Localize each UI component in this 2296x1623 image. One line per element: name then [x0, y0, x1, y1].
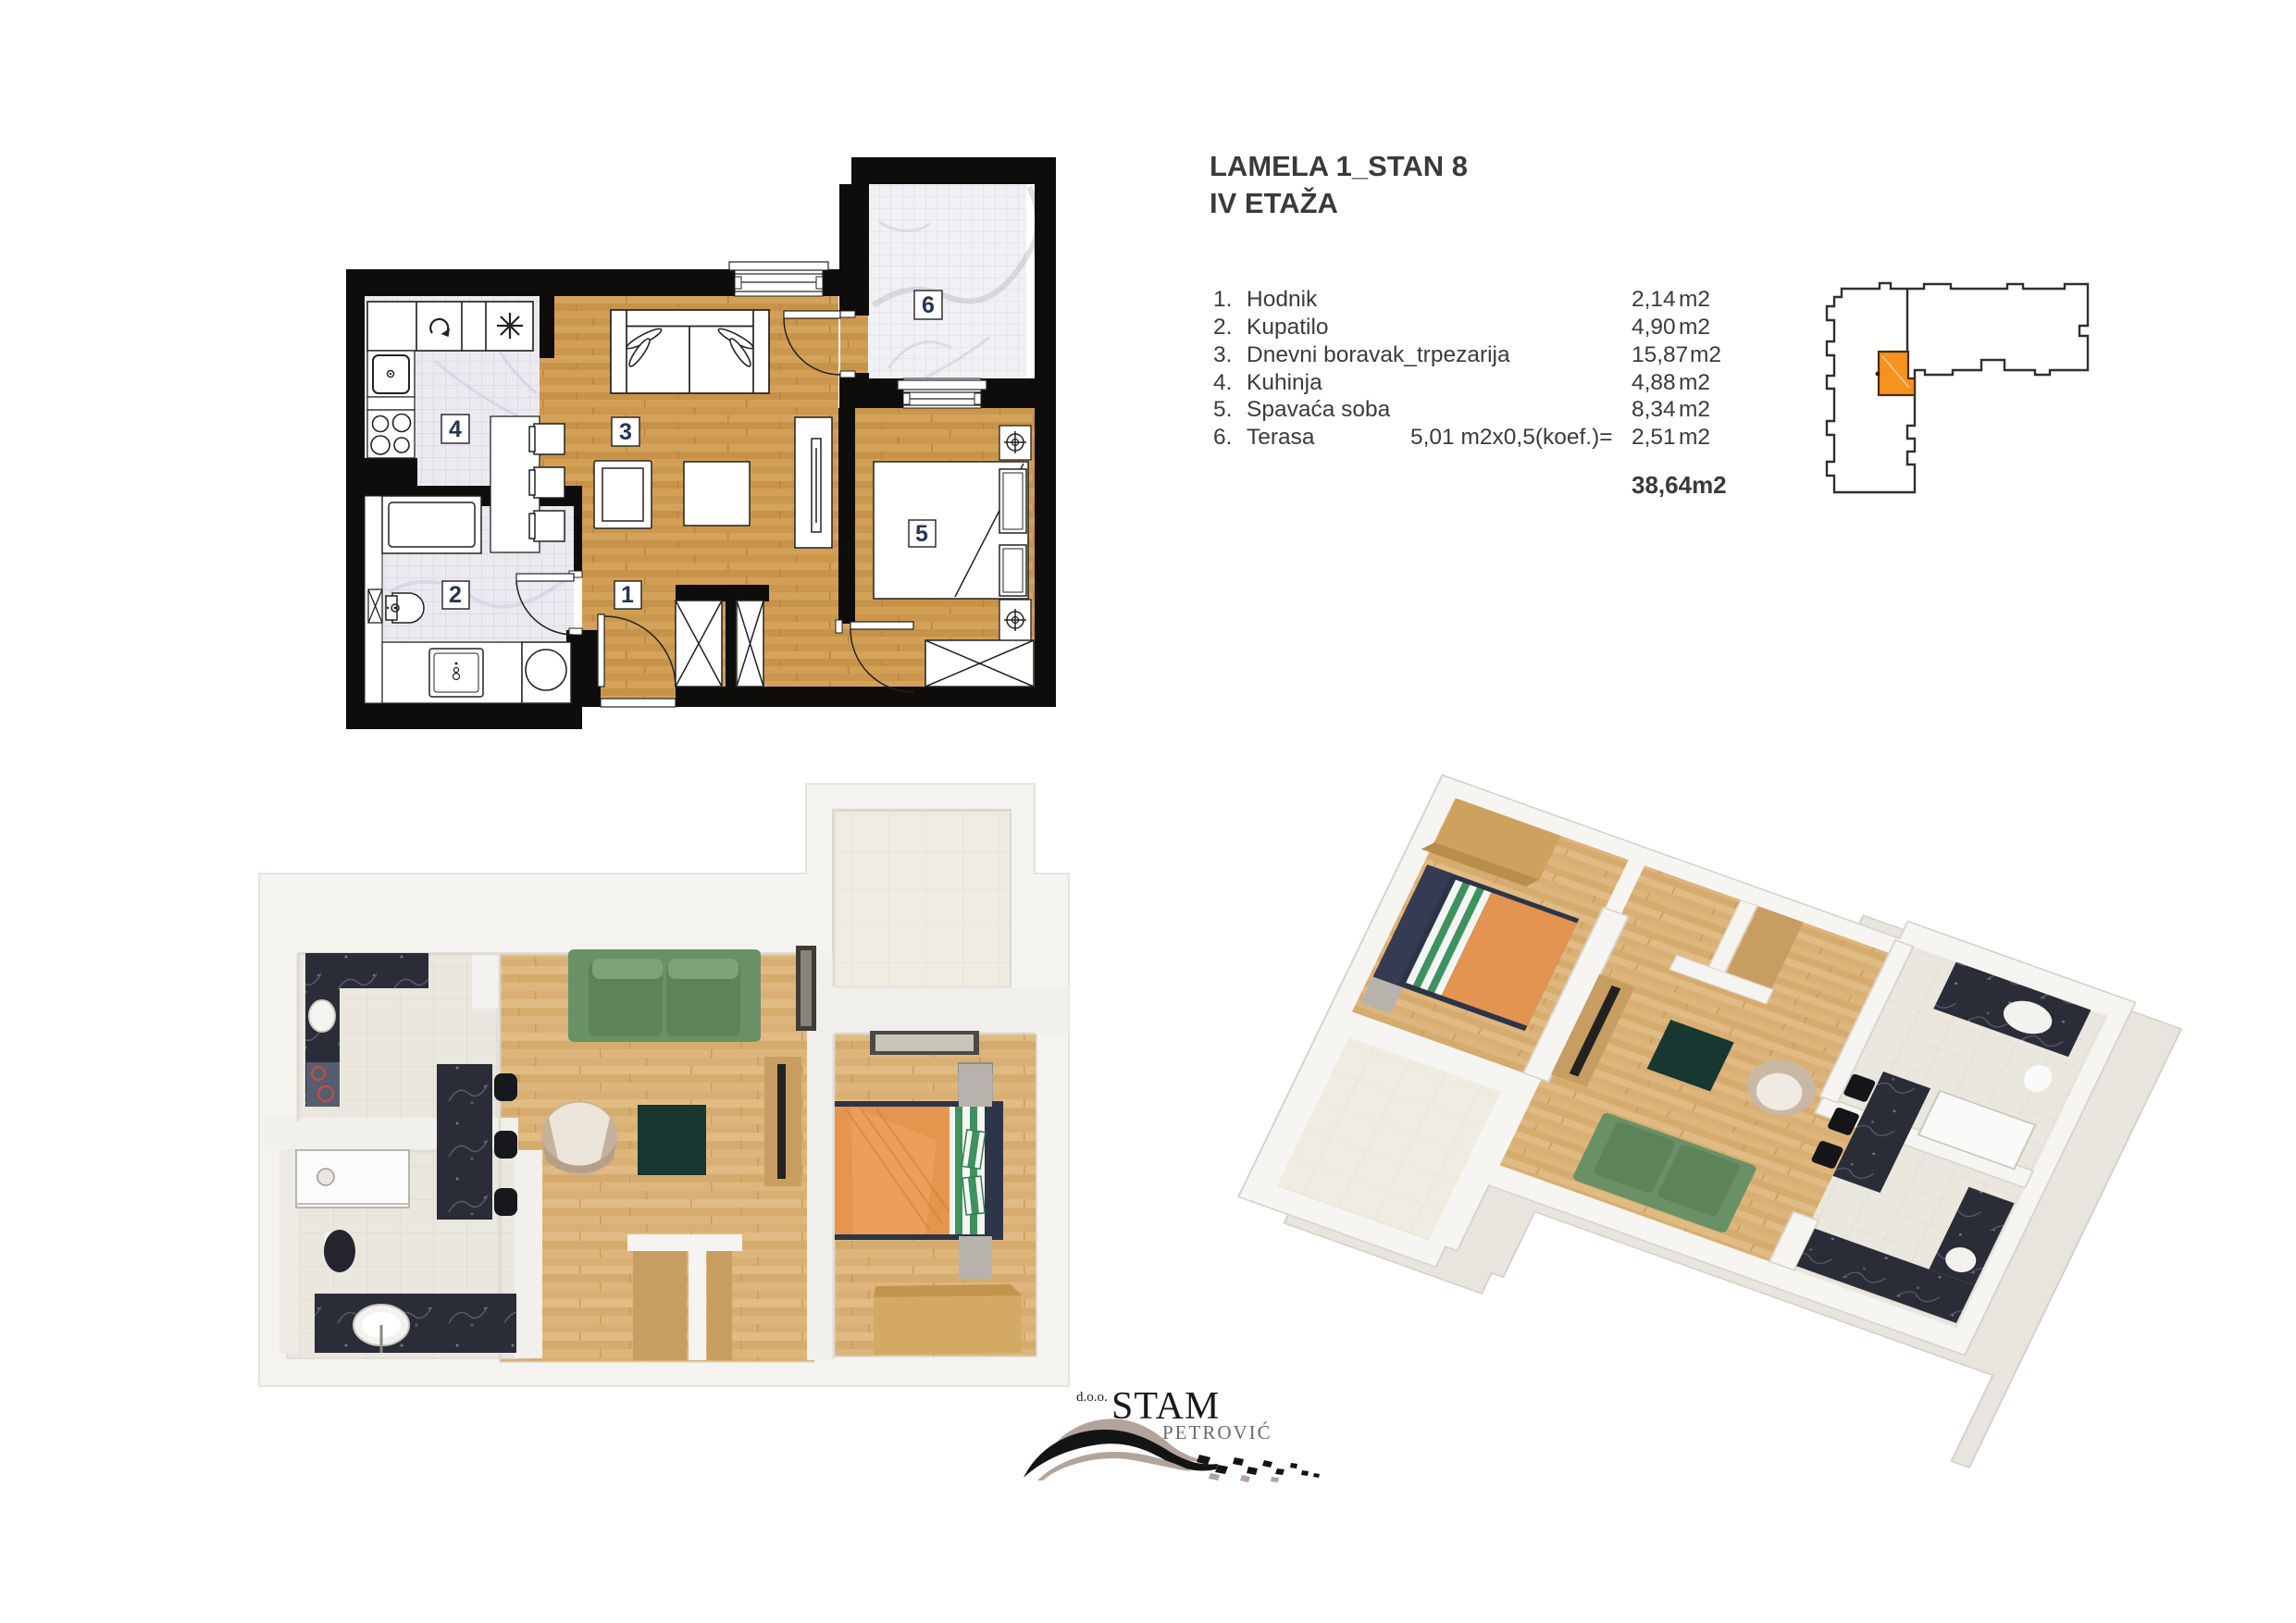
svg-text:PETROVIĆ: PETROVIĆ — [1162, 1421, 1272, 1443]
svg-text:d.o.o.: d.o.o. — [1076, 1390, 1108, 1405]
